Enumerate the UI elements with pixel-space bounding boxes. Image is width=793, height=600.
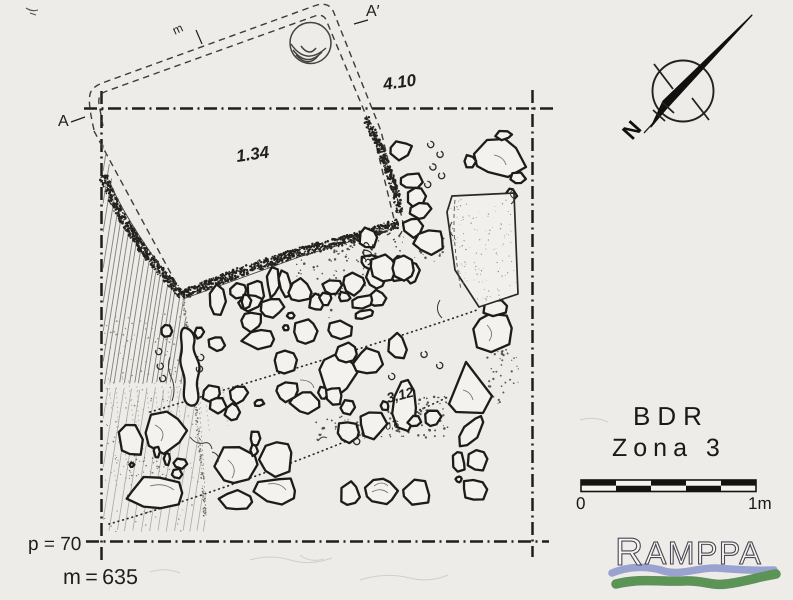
svg-text:A′: A′: [366, 3, 380, 20]
svg-text:BDR: BDR: [633, 401, 709, 431]
svg-text:1m: 1m: [748, 494, 772, 513]
svg-text:p = 70: p = 70: [28, 534, 81, 555]
svg-text:m = 635: m = 635: [63, 565, 138, 589]
svg-text:Zona 3: Zona 3: [612, 434, 726, 462]
svg-text:R: R: [615, 531, 643, 574]
svg-text:AMPPA: AMPPA: [645, 535, 762, 571]
svg-text:A: A: [58, 113, 69, 130]
svg-text:0: 0: [576, 494, 585, 513]
